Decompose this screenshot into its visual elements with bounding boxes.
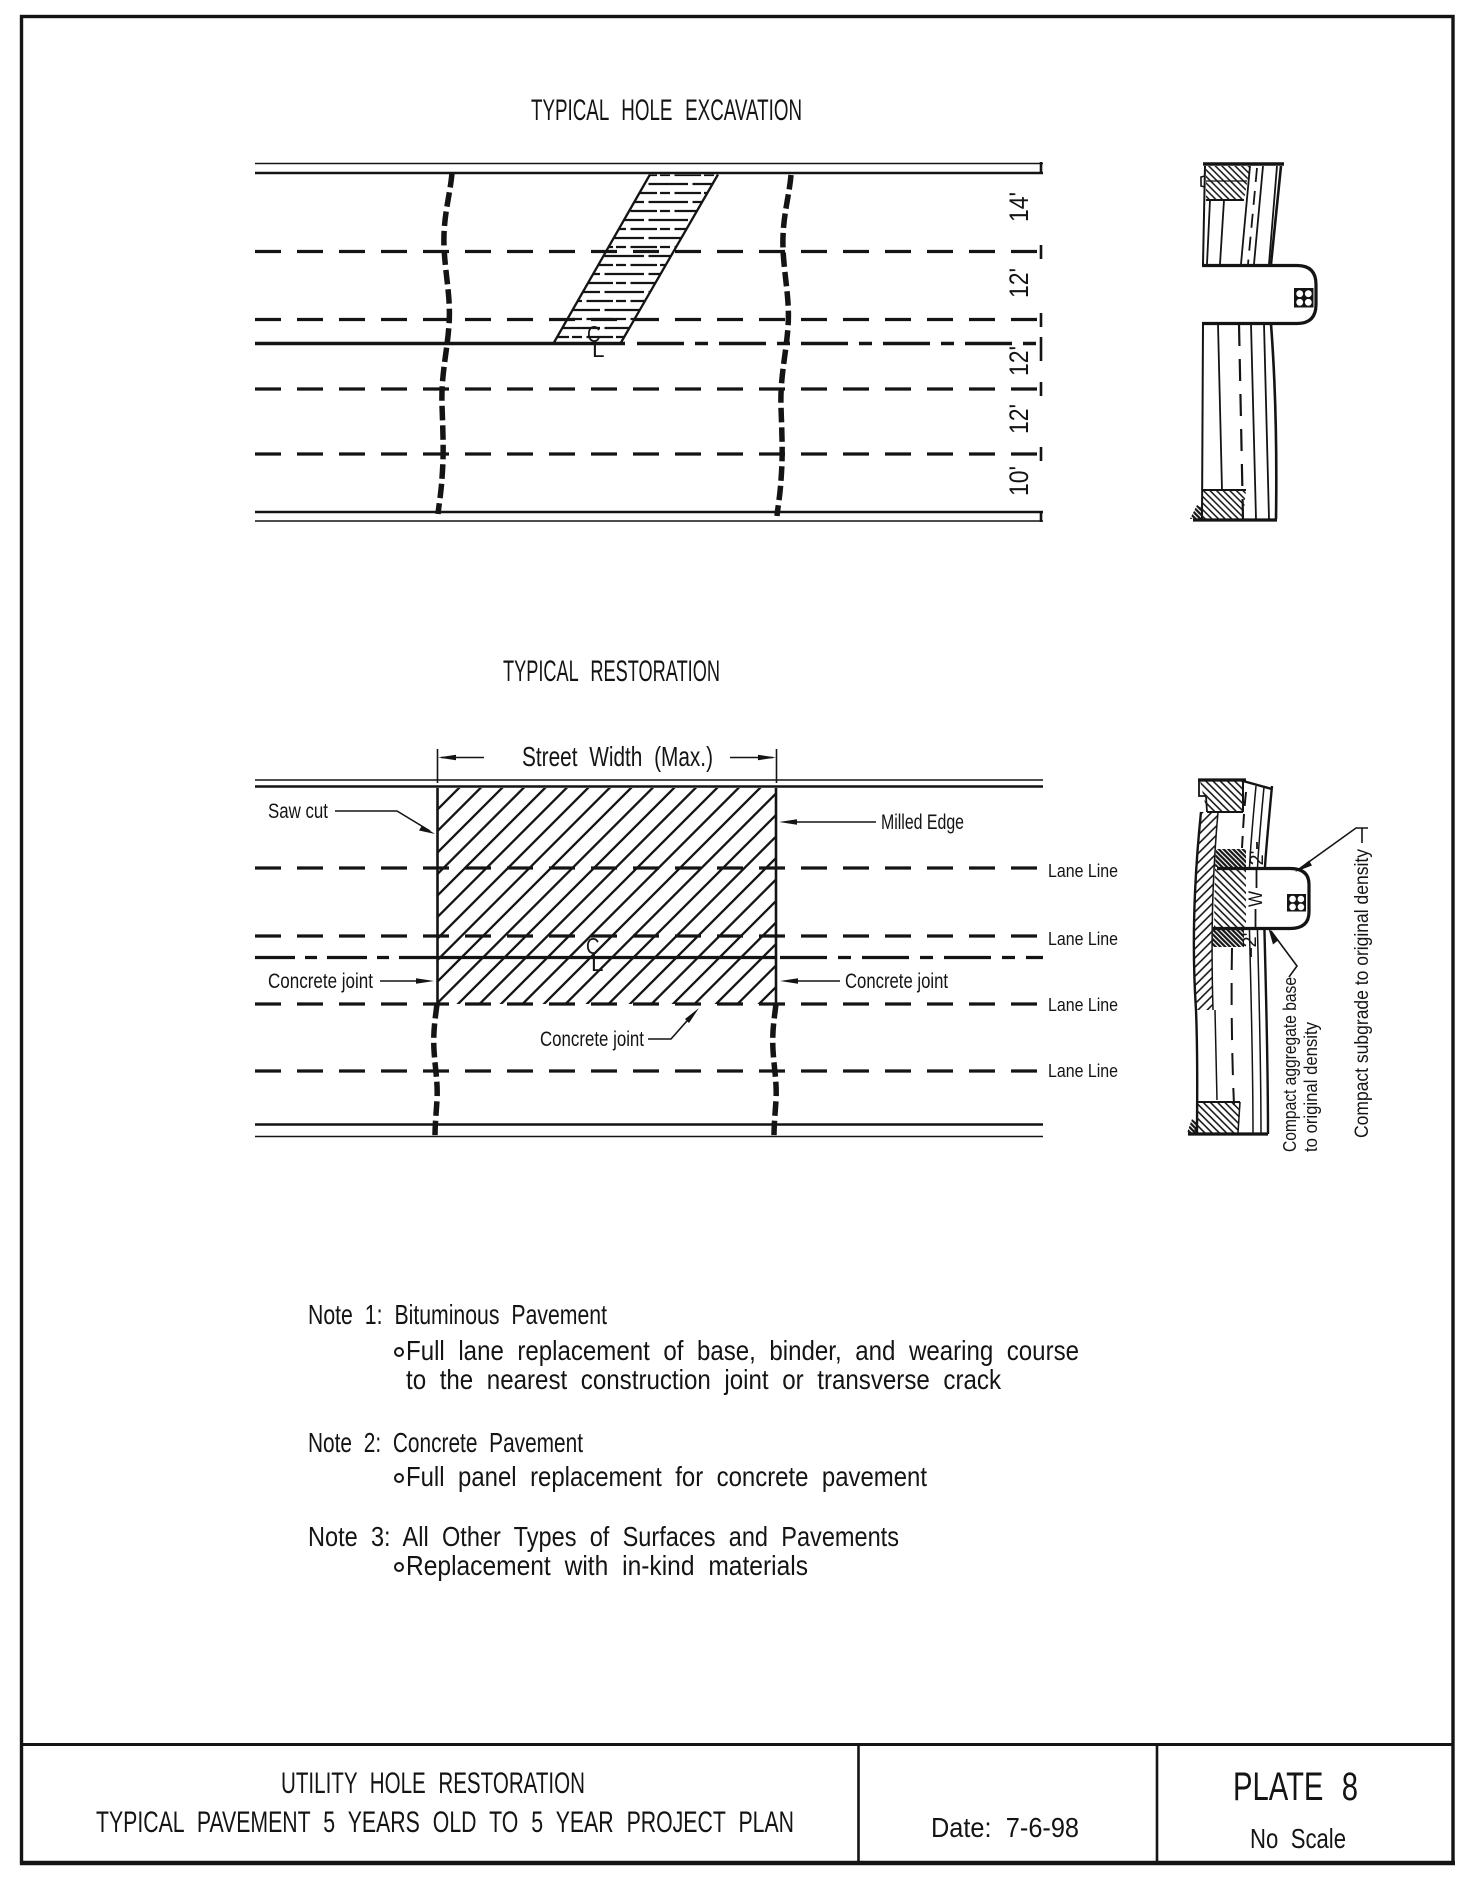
svg-text:PLATE 8: PLATE 8 [1233, 1765, 1358, 1809]
svg-text:TYPICAL PAVEMENT 5 YEARS OLD T: TYPICAL PAVEMENT 5 YEARS OLD TO 5 YEAR P… [96, 1806, 794, 1839]
svg-text:Full lane replacement of base,: Full lane replacement of base, binder, a… [406, 1335, 1079, 1366]
svg-text:Replacement with in-kind mater: Replacement with in-kind materials [406, 1550, 808, 1581]
svg-text:TYPICAL RESTORATION: TYPICAL RESTORATION [503, 655, 720, 688]
svg-text:L: L [591, 950, 604, 976]
svg-text:Note 3: All Other Types of Sur: Note 3: All Other Types of Surfaces and … [308, 1521, 899, 1552]
svg-text:No Scale: No Scale [1250, 1823, 1346, 1854]
svg-text:12': 12' [1004, 346, 1034, 376]
svg-text:UTILITY HOLE RESTORATION: UTILITY HOLE RESTORATION [281, 1767, 585, 1800]
svg-text:2': 2' [1240, 933, 1261, 948]
svg-text:Concrete joint: Concrete joint [268, 970, 373, 993]
svg-text:Lane Line: Lane Line [1048, 928, 1118, 949]
svg-text:12': 12' [1004, 404, 1034, 434]
svg-text:Saw cut: Saw cut [268, 800, 328, 823]
svg-text:Milled Edge: Milled Edge [881, 811, 964, 834]
svg-text:14': 14' [1004, 192, 1034, 222]
svg-text:10': 10' [1004, 466, 1034, 496]
svg-text:Note 1: Bituminous Pavement: Note 1: Bituminous Pavement [308, 1299, 607, 1330]
svg-text:TYPICAL HOLE EXCAVATION: TYPICAL HOLE EXCAVATION [531, 94, 802, 127]
svg-text:12': 12' [1004, 268, 1034, 298]
svg-text:Concrete joint: Concrete joint [845, 970, 948, 993]
svg-text:Full panel replacement for con: Full panel replacement for concrete pave… [406, 1461, 927, 1492]
svg-text:Date: 7-6-98: Date: 7-6-98 [931, 1812, 1079, 1843]
svg-text:Lane Line: Lane Line [1048, 860, 1118, 881]
svg-text:Compact aggregate base: Compact aggregate base [1280, 977, 1300, 1152]
svg-text:Lane Line: Lane Line [1048, 994, 1118, 1015]
svg-text:W: W [1246, 891, 1267, 907]
svg-text:2': 2' [1247, 851, 1268, 866]
svg-text:Street Width (Max.): Street Width (Max.) [522, 741, 713, 772]
svg-text:Lane Line: Lane Line [1048, 1060, 1118, 1081]
svg-text:Note 2: Concrete Pavement: Note 2: Concrete Pavement [308, 1427, 583, 1458]
svg-text:to original density: to original density [1301, 1022, 1321, 1152]
svg-text:Concrete joint: Concrete joint [540, 1028, 644, 1051]
svg-text:Compact subgrade to original d: Compact subgrade to original density [1352, 849, 1373, 1138]
svg-text:L: L [592, 336, 605, 362]
svg-text:to the nearest construction jo: to the nearest construction joint or tra… [406, 1364, 1002, 1395]
